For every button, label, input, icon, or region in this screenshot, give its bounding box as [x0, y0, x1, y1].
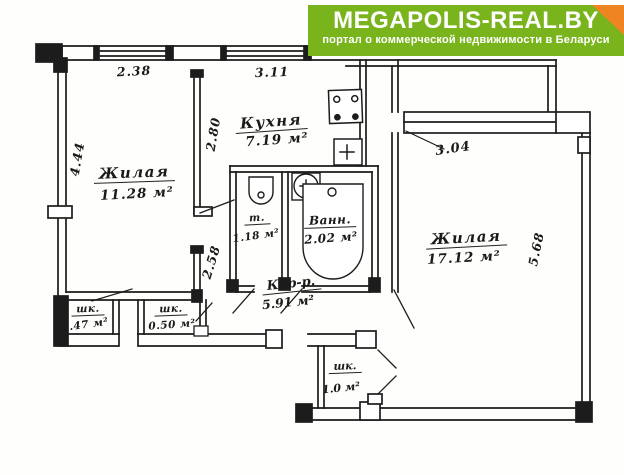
room-label-closet2-name: шк. — [154, 302, 188, 315]
room-label-living2-name: Жилая — [425, 225, 507, 248]
kitchen-sink-icon — [334, 139, 362, 165]
dimension-room1-width: 2.38 — [116, 63, 151, 80]
window-kitchen — [221, 46, 311, 60]
room-label-bath-name: Ванн. — [304, 212, 357, 228]
watermark-title: MEGAPOLIS-REAL.BY — [308, 8, 624, 34]
stove-icon — [328, 89, 362, 123]
window-top-left — [94, 46, 173, 60]
floorplan-scan: Жилая 11.28 м² Кухня 7.19 м² Жилая 17.12… — [0, 0, 624, 475]
watermark-subtitle: портал о коммерческой недвижимости в Бел… — [308, 34, 624, 47]
toilet-icon — [249, 177, 273, 204]
room-label-kitchen-name: Кухня — [234, 109, 307, 133]
room-label-living1-name: Жилая — [93, 161, 174, 183]
built-in-wardrobe — [404, 112, 590, 133]
watermark-logo: MEGAPOLIS-REAL.BY портал о коммерческой … — [308, 5, 624, 56]
room-label-closet1-name: шк. — [71, 302, 105, 315]
radiator — [48, 206, 212, 218]
room-label-closet3-name: шк. — [328, 359, 361, 373]
dimension-kitchen-width: 3.11 — [255, 64, 290, 80]
room-label-toilet-name: т. — [244, 211, 270, 224]
